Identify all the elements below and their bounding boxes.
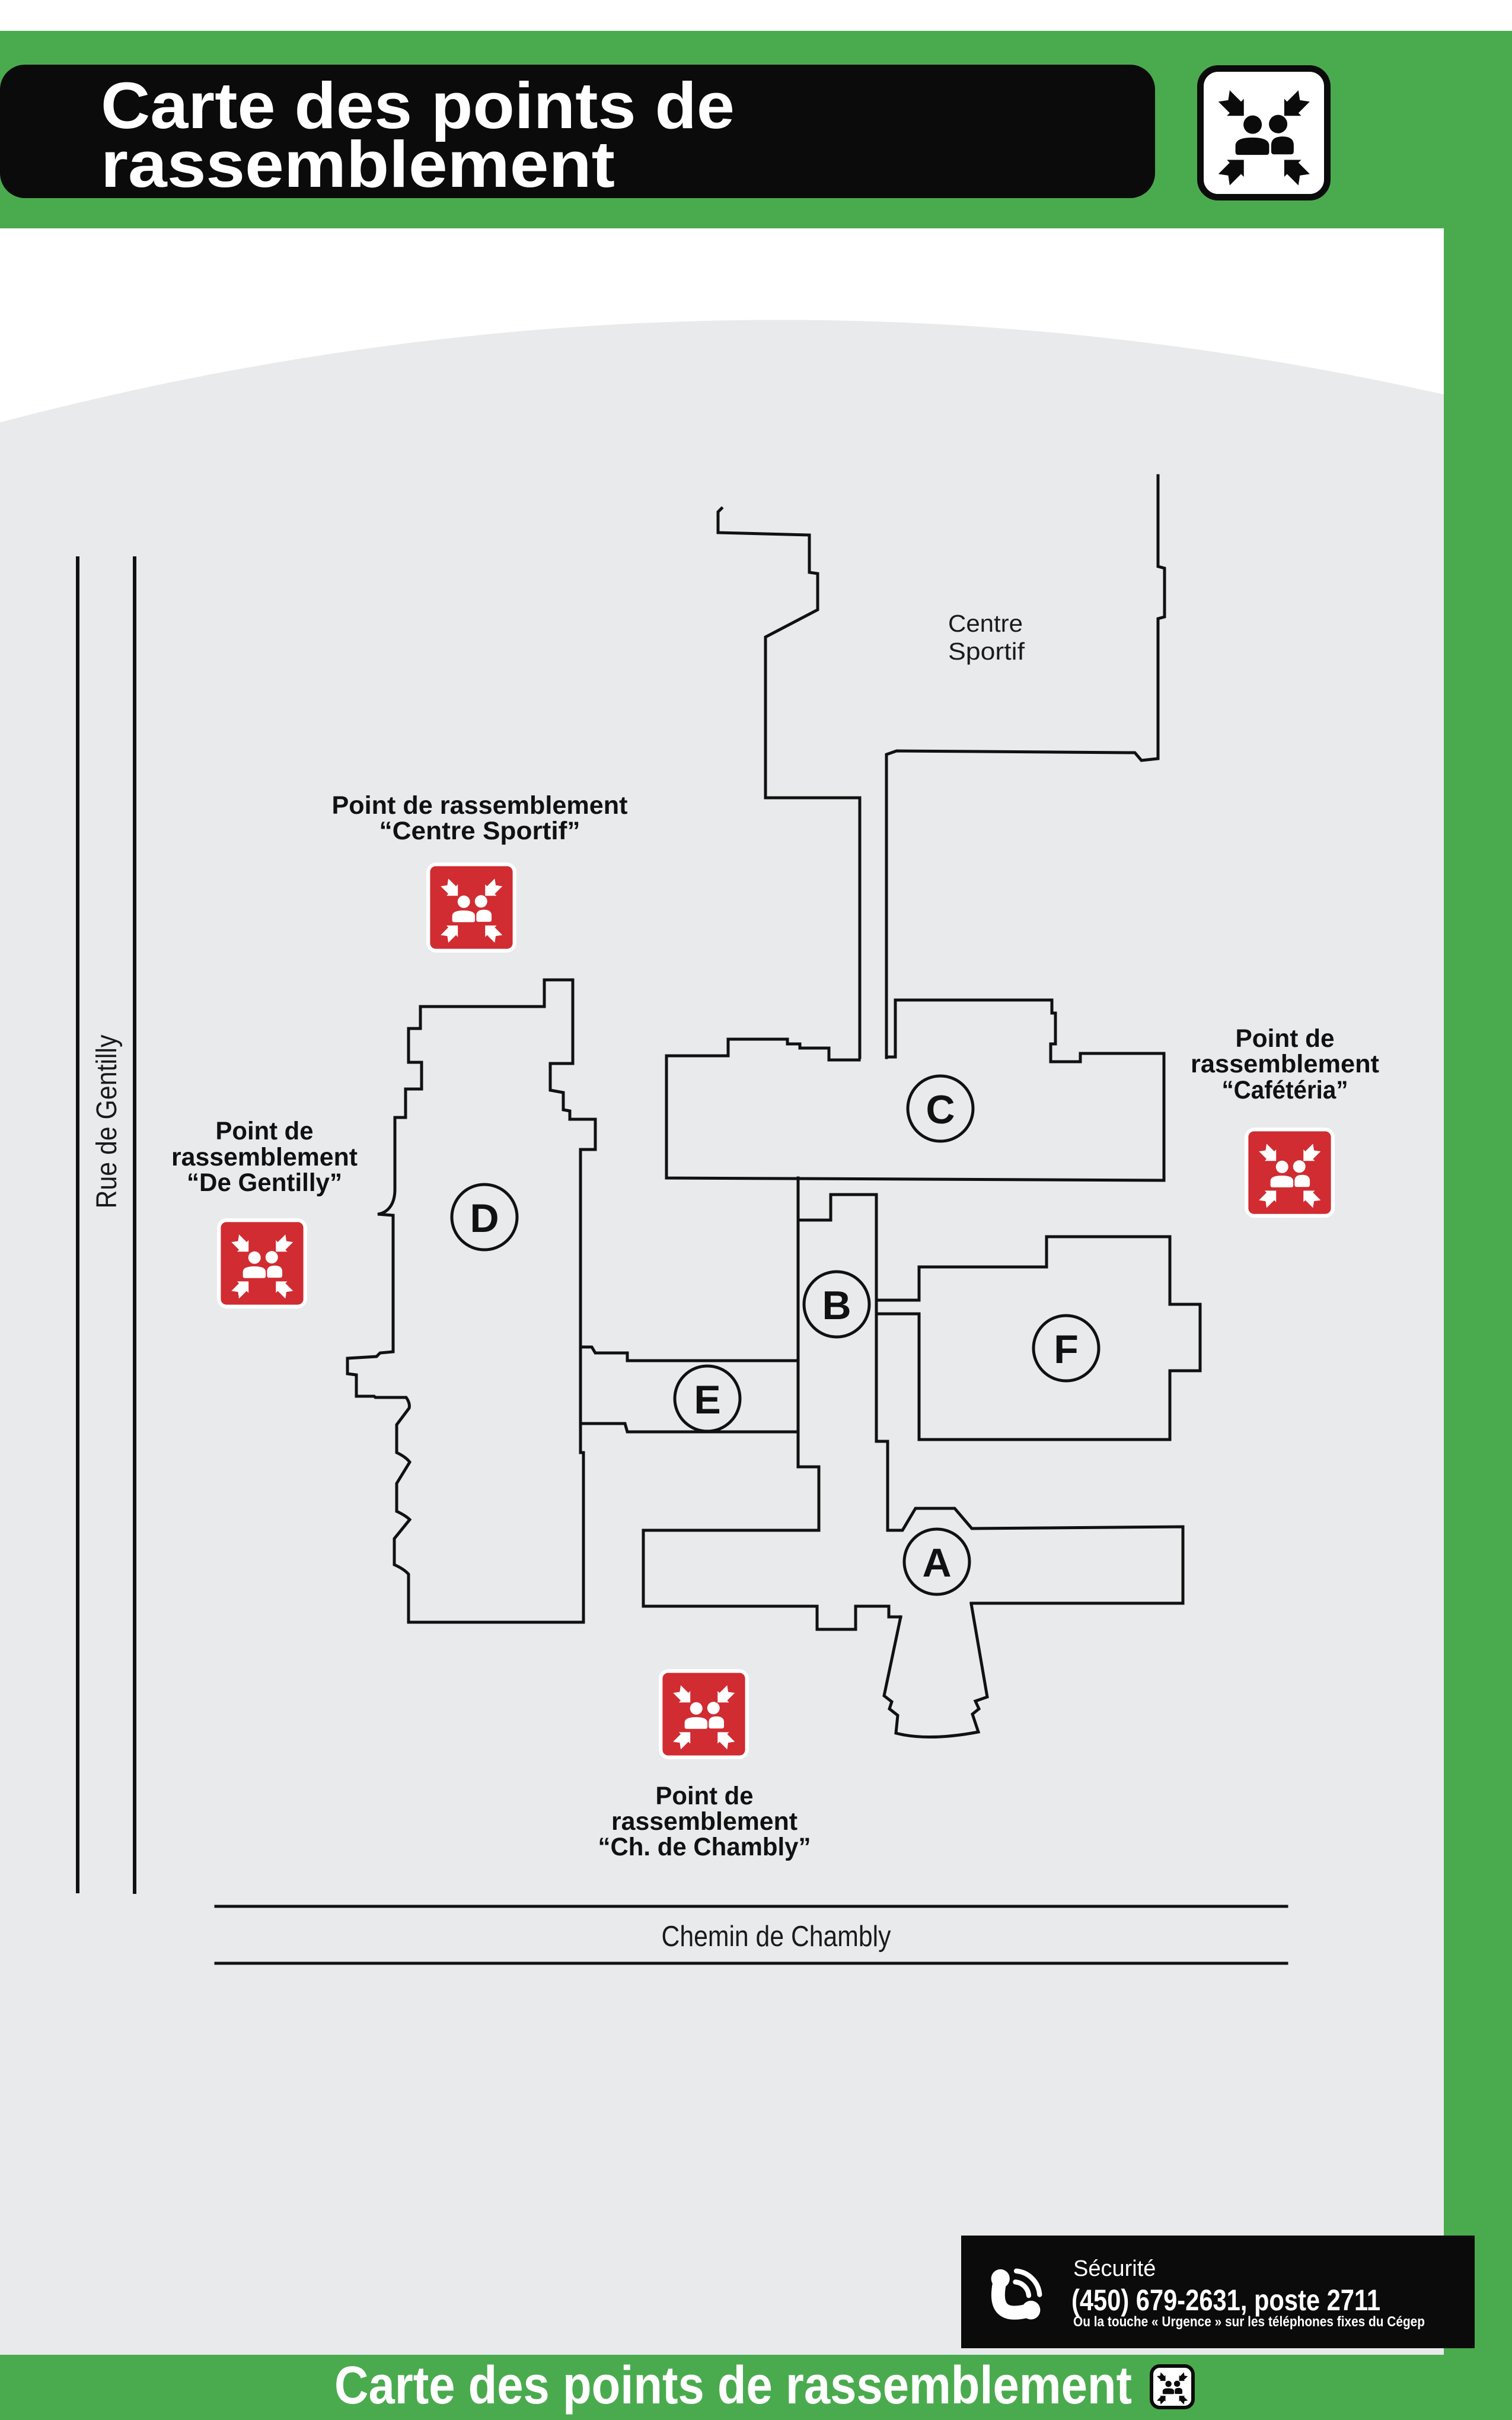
svg-text:Ou la touche « Urgence » sur l: Ou la touche « Urgence » sur les télépho… [1073, 2314, 1425, 2330]
svg-text:rassemblement: rassemblement [171, 1143, 358, 1171]
svg-text:Point de: Point de [216, 1117, 314, 1145]
svg-text:“Cafétéria”: “Cafétéria” [1222, 1076, 1348, 1104]
svg-text:B: B [822, 1283, 851, 1328]
svg-text:rassemblement: rassemblement [611, 1807, 798, 1836]
svg-text:“Ch. de Chambly”: “Ch. de Chambly” [598, 1833, 811, 1861]
svg-text:A: A [922, 1540, 951, 1585]
svg-text:D: D [470, 1196, 499, 1241]
svg-text:E: E [694, 1377, 720, 1422]
svg-text:F: F [1054, 1327, 1079, 1372]
svg-text:“De Gentilly”: “De Gentilly” [187, 1168, 342, 1197]
svg-text:Point de rassemblement: Point de rassemblement [332, 791, 628, 820]
svg-text:Carte des points de rassemblem: Carte des points de rassemblement [334, 2356, 1132, 2415]
svg-text:rassemblement: rassemblement [1191, 1050, 1379, 1078]
svg-text:(450) 679-2631, poste 2711: (450) 679-2631, poste 2711 [1071, 2284, 1380, 2317]
svg-text:Point de: Point de [1236, 1024, 1335, 1053]
svg-text:rassemblement: rassemblement [101, 128, 615, 201]
svg-text:Rue de Gentilly: Rue de Gentilly [91, 1035, 123, 1209]
svg-text:“Centre Sportif”: “Centre Sportif” [379, 817, 580, 845]
svg-text:Sportif: Sportif [948, 638, 1025, 665]
svg-text:Sécurité: Sécurité [1073, 2256, 1156, 2281]
svg-text:C: C [926, 1087, 955, 1132]
svg-text:Chemin de Chambly: Chemin de Chambly [662, 1921, 891, 1953]
svg-text:Centre: Centre [948, 610, 1023, 637]
svg-text:Point de: Point de [656, 1782, 754, 1810]
